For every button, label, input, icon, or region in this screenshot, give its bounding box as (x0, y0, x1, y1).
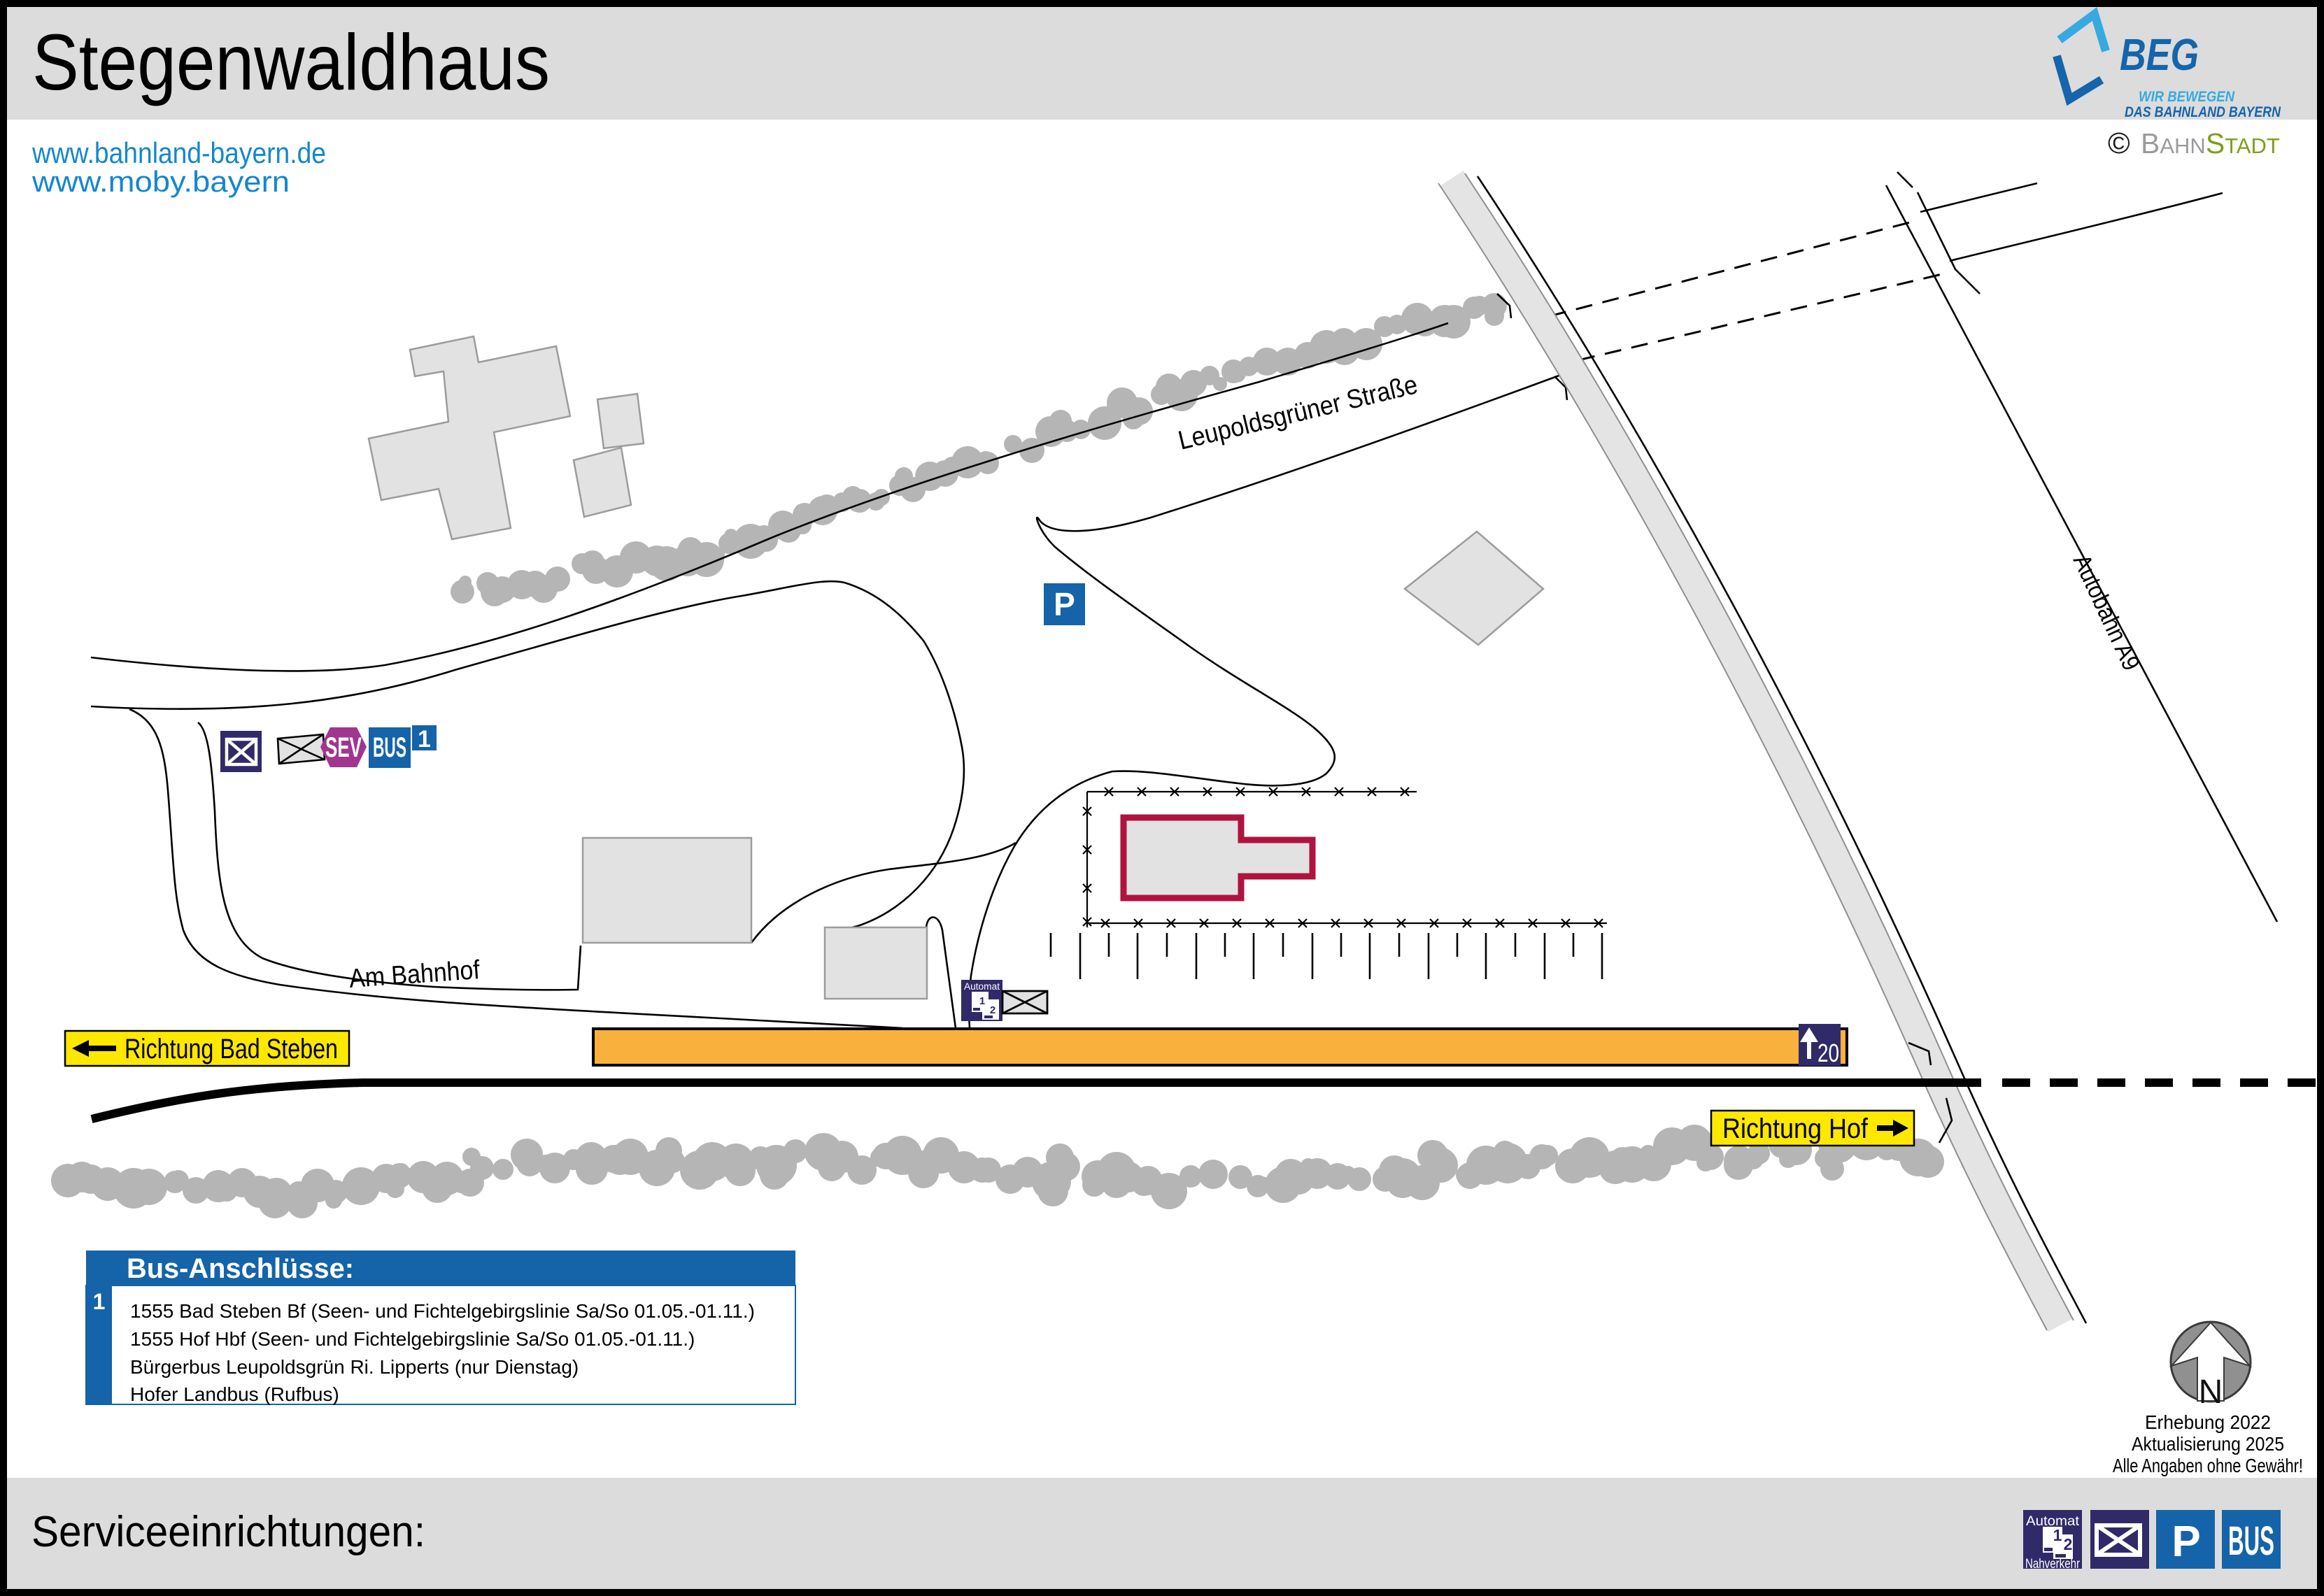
svg-text:1: 1 (2053, 1526, 2062, 1544)
svg-text:www.moby.bayern: www.moby.bayern (31, 165, 290, 198)
svg-text:P: P (2171, 1518, 2200, 1566)
svg-text:Richtung Bad Steben: Richtung Bad Steben (125, 1034, 338, 1064)
svg-text:Automat: Automat (964, 981, 1000, 992)
svg-text:1: 1 (93, 1289, 106, 1314)
svg-text:1: 1 (979, 995, 985, 1007)
svg-text:Alle Angaben ohne Gewähr!: Alle Angaben ohne Gewähr! (2113, 1455, 2303, 1476)
svg-text:Nahverkehr: Nahverkehr (2025, 1556, 2080, 1572)
svg-text:Bus-Anschlüsse:: Bus-Anschlüsse: (127, 1253, 354, 1284)
svg-text:Bürgerbus Leupoldsgrün Ri. Lip: Bürgerbus Leupoldsgrün Ri. Lipperts (nur… (130, 1356, 579, 1378)
svg-text:DAS BAHNLAND BAYERN: DAS BAHNLAND BAYERN (2125, 104, 2281, 120)
svg-text:www.bahnland-bayern.de: www.bahnland-bayern.de (31, 136, 326, 169)
svg-text:WIR BEWEGEN: WIR BEWEGEN (2139, 89, 2235, 105)
svg-text:2: 2 (990, 1004, 996, 1016)
svg-text:P: P (1054, 586, 1075, 622)
svg-text:Aktualisierung 2025: Aktualisierung 2025 (2132, 1433, 2284, 1455)
svg-text:1555 Bad Steben Bf (Seen- und: 1555 Bad Steben Bf (Seen- und Fichtelgeb… (130, 1300, 755, 1322)
svg-text:2: 2 (2064, 1535, 2073, 1553)
svg-text:©: © (2108, 127, 2130, 160)
svg-text:BUS: BUS (2228, 1518, 2274, 1564)
svg-text:Erhebung 2022: Erhebung 2022 (2145, 1411, 2271, 1433)
svg-text:Richtung Hof: Richtung Hof (1722, 1113, 1869, 1144)
svg-text:Hofer Landbus (Rufbus): Hofer Landbus (Rufbus) (130, 1383, 339, 1405)
svg-text:Stegenwaldhaus: Stegenwaldhaus (32, 18, 550, 106)
svg-text:BUS: BUS (373, 732, 406, 763)
svg-text:Serviceeinrichtungen:: Serviceeinrichtungen: (31, 1508, 425, 1556)
svg-text:1555 Hof Hbf (Seen- und Fichte: 1555 Hof Hbf (Seen- und Fichtelgebirgsli… (130, 1328, 695, 1350)
svg-text:BEG: BEG (2120, 29, 2199, 80)
svg-text:20: 20 (1818, 1039, 1839, 1067)
svg-text:1: 1 (418, 726, 431, 753)
svg-text:N: N (2199, 1374, 2223, 1411)
svg-text:SEV: SEV (325, 732, 362, 763)
